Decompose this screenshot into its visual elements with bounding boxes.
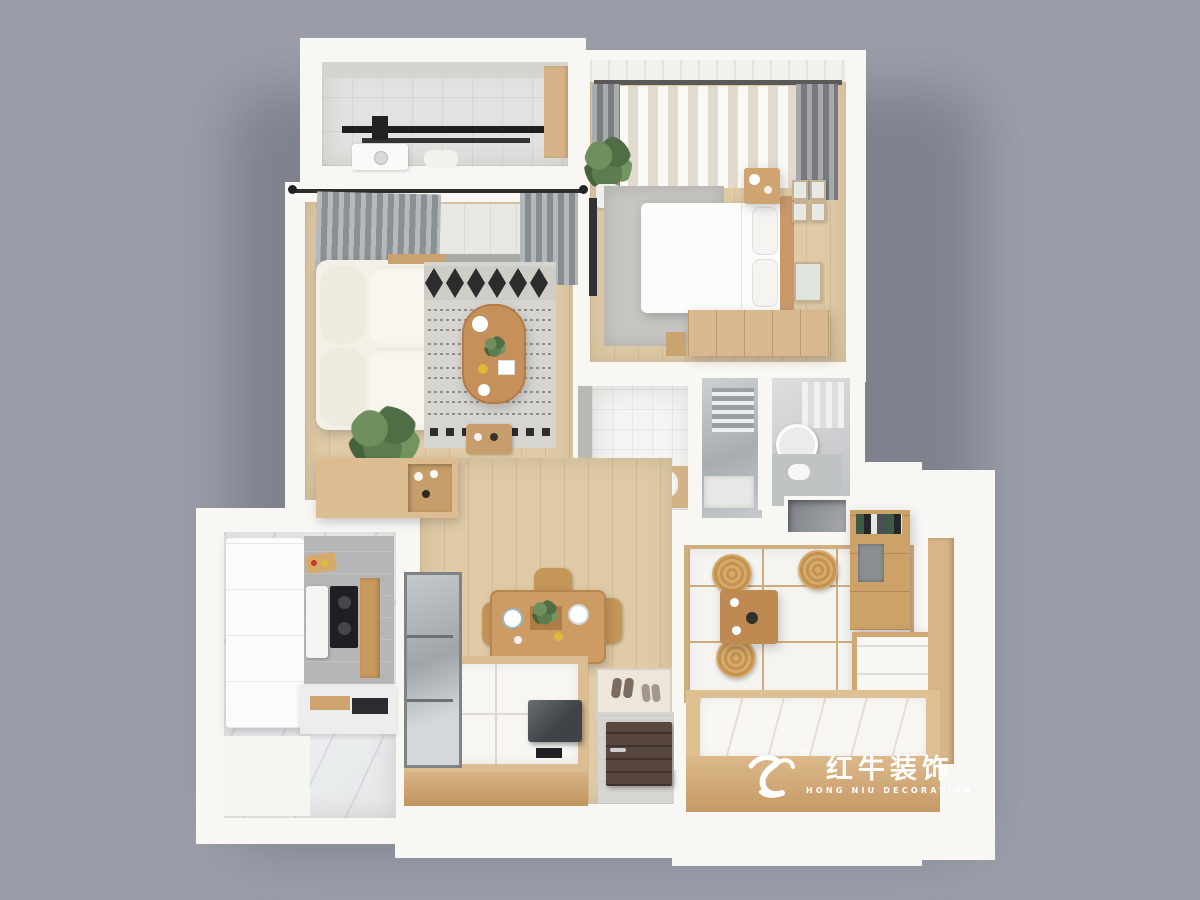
bedroom-frames	[792, 180, 828, 300]
shoe-4	[651, 684, 661, 703]
watermark: ® 红牛装饰 HONG NIU DECORATION	[746, 752, 974, 798]
floor-cushion-1	[712, 554, 752, 594]
wall-bath-divider-1	[688, 376, 702, 520]
watermark-brand-cn: 红牛装饰	[826, 756, 954, 783]
bull-logo-icon: ®	[746, 752, 798, 798]
desk-bookshelf	[850, 510, 910, 630]
drying-rack-bracket	[372, 116, 388, 140]
partition-mullion-2	[407, 699, 453, 702]
sofa-back-cushion-1	[320, 266, 366, 344]
wall-tv	[589, 198, 597, 296]
vanity-sink	[788, 464, 810, 480]
tatami-bed-mats	[700, 698, 926, 758]
balcony-cushion	[424, 150, 458, 168]
frame-small-3	[792, 202, 808, 222]
towel-radiator	[712, 388, 754, 432]
sideboard-bottle-1	[414, 472, 423, 481]
dining-cup	[514, 636, 522, 644]
frame-small-2	[810, 180, 826, 200]
nightstand-lamp	[749, 174, 760, 185]
side-table-bottle-2	[490, 433, 498, 441]
wall-bath-divider-2	[758, 376, 770, 510]
wardrobe	[688, 310, 830, 356]
bedroom-sheer-curtain	[598, 86, 824, 188]
burner-2	[338, 622, 351, 635]
bedroom-ceiling-band	[590, 60, 846, 82]
coffee-table-plant	[484, 336, 506, 358]
platform-bed-front	[404, 772, 588, 806]
sideboard-bottle-3	[422, 490, 430, 498]
side-table-bottle-1	[474, 433, 482, 441]
door-handle	[610, 748, 626, 752]
dining-plate-1	[502, 608, 523, 629]
burner-1	[338, 596, 351, 609]
frame-tall	[794, 262, 822, 302]
watermark-brand-en: HONG NIU DECORATION	[806, 786, 974, 795]
vanity-room	[772, 378, 850, 506]
sideboard-open-shelf	[408, 464, 452, 512]
books-row	[856, 514, 902, 534]
side-table	[466, 424, 512, 454]
desk-panel	[858, 544, 884, 582]
glass-partition	[404, 572, 462, 768]
floor-cushion-3	[716, 638, 756, 678]
storage-niche	[784, 496, 850, 536]
shoe-2	[623, 677, 635, 698]
shower-items	[704, 476, 754, 508]
nightstand-cup	[764, 186, 772, 194]
board-veg-2	[322, 560, 329, 567]
vanity-window-curtain	[802, 382, 844, 428]
rod-finial-left	[288, 185, 297, 194]
coffee-tray	[498, 360, 515, 375]
rod-finial-right	[579, 185, 588, 194]
counter-wood-tray	[310, 696, 350, 710]
shoe-3	[641, 684, 651, 703]
board-veg-1	[311, 560, 318, 567]
lift-table-remote	[536, 748, 562, 758]
sideboard	[316, 458, 458, 518]
kitchen-tall-cabinet	[360, 578, 380, 678]
sideboard-bottle-2	[430, 470, 438, 478]
frame-small-4	[810, 202, 826, 222]
counter-sink-dark	[352, 698, 388, 714]
floor-cushion-2	[798, 550, 838, 590]
duvet-fold	[741, 203, 742, 313]
tea-cup-2	[732, 626, 741, 635]
partition-mullion-1	[407, 635, 453, 638]
frame-small-1	[792, 180, 808, 200]
teapot	[746, 612, 758, 624]
entry-door	[606, 722, 672, 786]
washer-door	[374, 151, 388, 165]
shower-room	[700, 378, 762, 518]
washing-machine	[352, 144, 408, 170]
lift-table	[528, 700, 582, 742]
dining-table	[490, 590, 606, 664]
balcony-ceiling-beam	[322, 62, 568, 78]
dining-yellow-item	[554, 632, 563, 641]
cooktop	[330, 586, 358, 648]
registered-mark: ®	[800, 748, 810, 759]
floorplan-render: ® 红牛装饰 HONG NIU DECORATION	[0, 0, 1200, 900]
boiler	[306, 586, 328, 658]
balcony-cabinet	[544, 66, 568, 158]
bed-pillow-2	[752, 259, 778, 307]
bed-pillow-1	[752, 207, 778, 255]
coffee-yellow-item	[478, 364, 488, 374]
coffee-table	[462, 304, 526, 404]
kitchen-island-front	[224, 736, 310, 816]
coffee-plate-1	[472, 316, 488, 332]
kitchen-counter	[300, 684, 396, 734]
tea-cup-1	[730, 598, 739, 607]
wardrobe-bench	[666, 332, 686, 356]
shoe-1	[611, 677, 623, 698]
kitchen-cabinets-left	[226, 538, 304, 728]
dining-plant	[532, 600, 558, 626]
tea-table	[720, 590, 778, 644]
dining-plate-2	[568, 604, 589, 625]
coffee-plate-2	[478, 384, 490, 396]
nightstand	[744, 168, 780, 204]
